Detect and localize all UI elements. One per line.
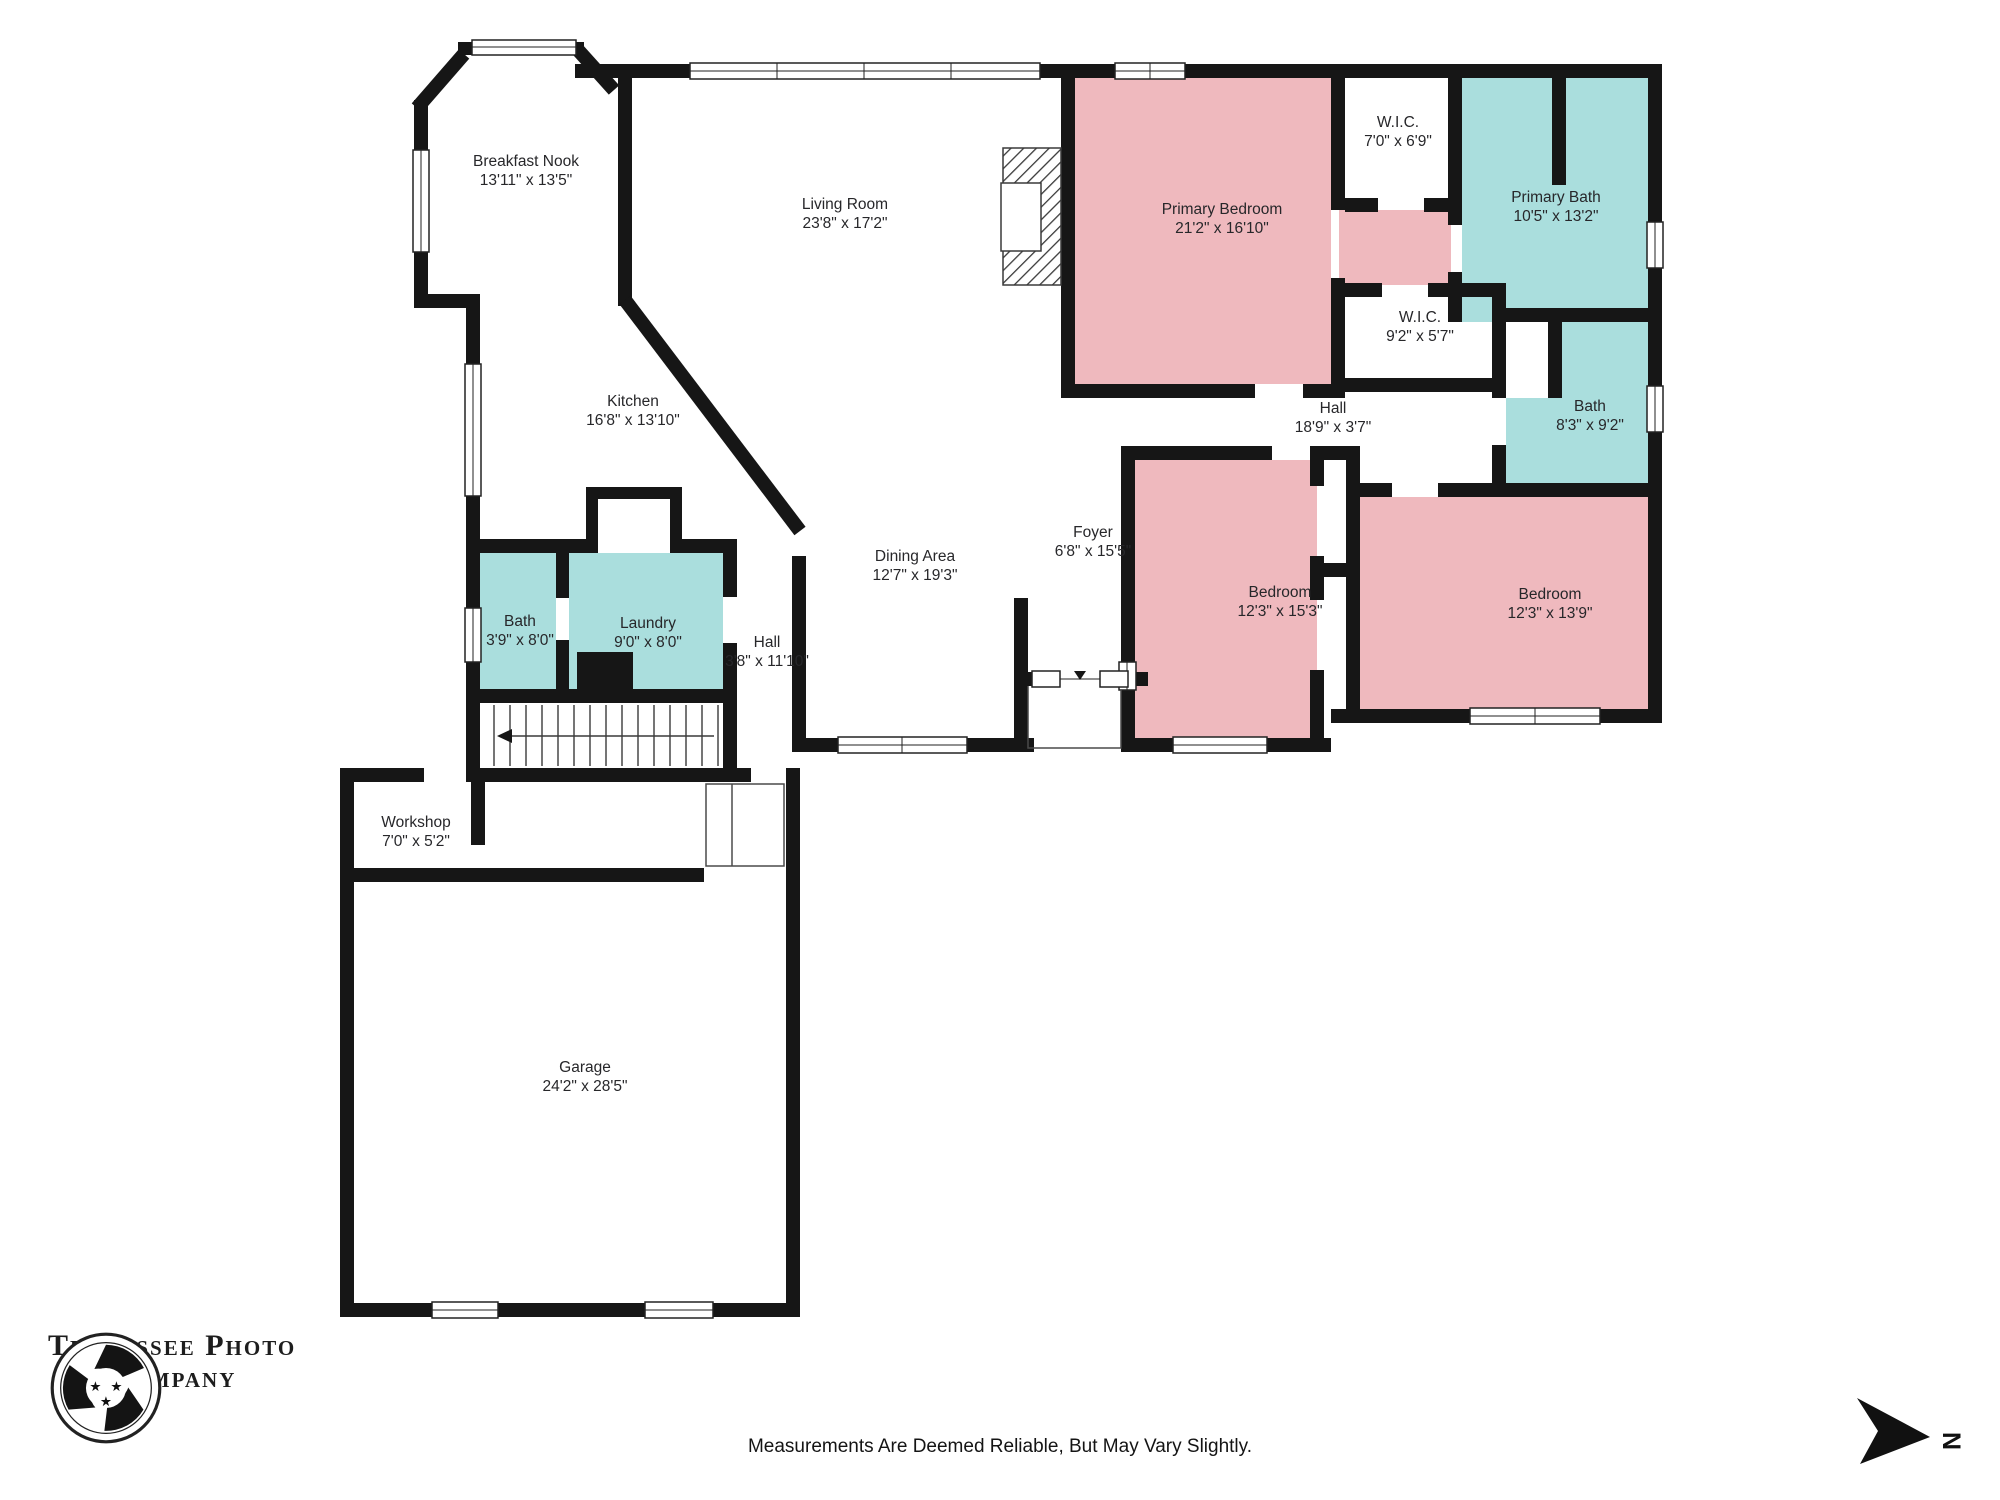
room-label-hall-lower: Hall3'8" x 11'10" <box>725 634 809 672</box>
entry-sidelight <box>1032 671 1060 687</box>
room-label-living-room: Living Room23'8" x 17'2" <box>802 196 888 234</box>
stairs-direction-arrow <box>497 729 512 743</box>
star-icon: ★ <box>110 1379 122 1394</box>
floorplan-canvas: N <box>0 0 2000 1500</box>
garage-landing-outline <box>706 784 784 866</box>
room-label-primary-bedroom: Primary Bedroom21'2" x 16'10" <box>1162 201 1283 239</box>
room-label-primary-bath: Primary Bath10'5" x 13'2" <box>1511 189 1601 227</box>
star-icon: ★ <box>100 1394 112 1409</box>
room-label-workshop: Workshop7'0" x 5'2" <box>381 814 451 852</box>
window <box>465 608 481 662</box>
room-label-wic-2: W.I.C.9'2" x 5'7" <box>1386 309 1454 347</box>
primary-suite-corridor-fill <box>1339 210 1451 285</box>
room-label-kitchen: Kitchen16'8" x 13'10" <box>586 393 680 431</box>
window <box>1470 708 1600 724</box>
utility-chase <box>577 652 633 696</box>
window <box>838 737 967 753</box>
company-logo: ★ ★ ★ Tennessee Photo Company <box>48 1330 296 1393</box>
window <box>465 364 481 496</box>
window <box>1647 386 1663 432</box>
room-label-bath-2: Bath8'3" x 9'2" <box>1556 398 1624 436</box>
entry-porch-outline <box>1028 686 1121 748</box>
floorplan-page: N Breakfast Nook13'11" x 13'5" Living Ro… <box>0 0 2000 1500</box>
window <box>690 63 1040 79</box>
room-label-foyer: Foyer6'8" x 15'5" <box>1055 524 1131 562</box>
camera-shutter-logo-icon: ★ ★ ★ <box>48 1330 164 1446</box>
window <box>472 40 576 55</box>
room-label-garage: Garage24'2" x 28'5" <box>542 1059 627 1097</box>
north-label: N <box>1937 1432 1965 1450</box>
stairs-icon <box>494 705 718 766</box>
window <box>1173 737 1267 753</box>
window <box>1647 222 1663 268</box>
room-label-bedroom-2: Bedroom12'3" x 13'9" <box>1507 586 1592 624</box>
room-label-hall-upper: Hall18'9" x 3'7" <box>1295 400 1371 438</box>
room-label-breakfast-nook: Breakfast Nook13'11" x 13'5" <box>473 153 579 191</box>
disclaimer-text: Measurements Are Deemed Reliable, But Ma… <box>748 1436 1252 1458</box>
room-label-bath-1: Bath3'9" x 8'0" <box>486 613 554 651</box>
room-label-laundry: Laundry9'0" x 8'0" <box>614 615 682 653</box>
room-label-bedroom-1: Bedroom12'3" x 15'3" <box>1237 584 1322 622</box>
fireplace-icon <box>1001 148 1061 285</box>
bath-2-vestibule-fill <box>1506 322 1548 398</box>
bedroom-2-fill <box>1360 497 1648 709</box>
entry-sidelight <box>1100 671 1128 687</box>
room-label-wic-1: W.I.C.7'0" x 6'9" <box>1364 114 1432 152</box>
window <box>432 1302 498 1318</box>
star-icon: ★ <box>89 1379 101 1394</box>
window <box>645 1302 713 1318</box>
north-arrow-icon: N <box>1857 1398 1965 1464</box>
room-label-dining-area: Dining Area12'7" x 19'3" <box>872 548 957 586</box>
window <box>1115 63 1185 79</box>
window <box>413 150 429 252</box>
